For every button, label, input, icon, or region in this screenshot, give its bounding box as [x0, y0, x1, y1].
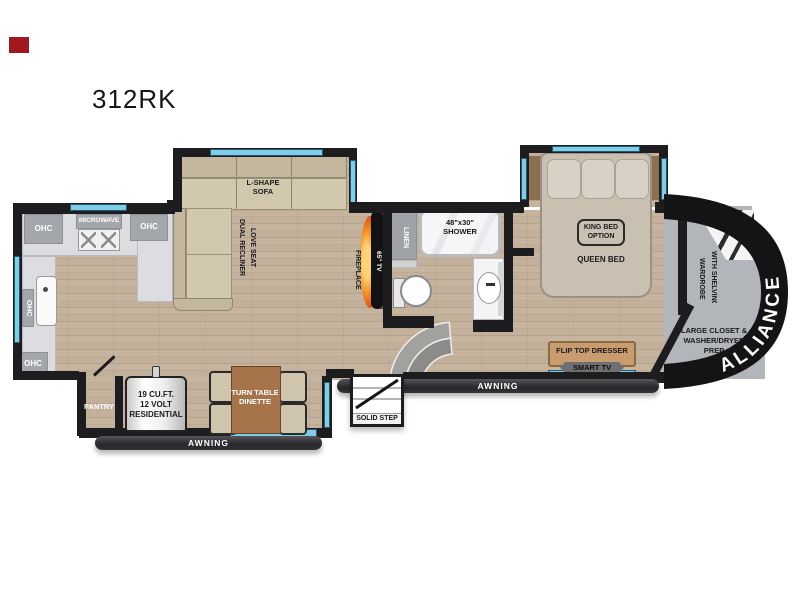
- wall-vanity-bottom: [473, 320, 513, 332]
- shower-label-line2: SHOWER: [424, 227, 496, 236]
- ohc-label-left: OHC: [23, 292, 34, 324]
- shower-label-line1: 48"x30": [424, 218, 496, 227]
- loveseat-cushion-divider: [186, 254, 232, 255]
- wall-top-mid: [349, 202, 524, 213]
- fireplace-label: FIREPLACE: [350, 230, 361, 310]
- sofa-slide-top-window: [210, 149, 323, 156]
- linen-ledge: [391, 260, 417, 268]
- vanity-faucet-icon: [486, 283, 495, 286]
- solid-step-label: SOLID STEP: [353, 413, 401, 424]
- bed-slide-top-window: [552, 146, 640, 152]
- wall-bath-right: [504, 212, 513, 332]
- ohc-label-1: OHC: [24, 224, 63, 234]
- faucet-icon: [43, 287, 48, 292]
- kitchen-sink: [36, 276, 57, 326]
- awning-left-label: AWNING: [188, 438, 229, 448]
- fridge-label-line1: 19 CU.FT.: [127, 390, 185, 400]
- king-bed-option-label: KING BED OPTION: [577, 223, 625, 241]
- ohc-label-3: OHC: [18, 359, 48, 369]
- wall-toilet-room: [388, 316, 434, 328]
- wall-bedroom-step-stub: [504, 248, 534, 256]
- sofa-label: L-SHAPE SOFA: [238, 178, 288, 196]
- burner-icon-left: [81, 232, 96, 248]
- loveseat-arm: [173, 298, 233, 311]
- svg-text:ALLIANCE: ALLIANCE: [717, 273, 785, 377]
- solid-step: SOLID STEP: [350, 374, 404, 427]
- red-corner-tag: [9, 37, 29, 53]
- awning-right-label: AWNING: [478, 381, 519, 391]
- flip-top-dresser-label: FLIP TOP DRESSER: [548, 346, 636, 355]
- shower-label: 48"x30" SHOWER: [424, 218, 496, 236]
- dinette-chair-3: [279, 371, 307, 403]
- dinette-label-line2: DINETTE: [228, 397, 282, 406]
- smart-tv-label: SMART TV: [556, 363, 628, 372]
- sofa-label-line1: L-SHAPE: [238, 178, 288, 187]
- loveseat-back: [173, 208, 186, 300]
- refrigerator-label: 19 CU.FT. 12 VOLT RESIDENTIAL: [127, 390, 185, 420]
- model-title: 312RK: [92, 84, 177, 115]
- loveseat-label-line1: DUAL RECLINER: [234, 214, 245, 282]
- solid-step-icon: [353, 377, 401, 411]
- sofa-label-line2: SOFA: [238, 187, 288, 196]
- awning-left: AWNING: [95, 436, 322, 450]
- fridge-label-line3: RESIDENTIAL: [127, 410, 185, 420]
- sofa-slide-corner: [167, 200, 181, 212]
- tv-label: 65" TV: [373, 238, 382, 284]
- pantry-right-wall: [115, 376, 123, 432]
- loveseat-label-line2: LOVE SEAT: [245, 214, 256, 282]
- floorplan-canvas: 312RK OHC MICROWAVE OHC OHC OHC L-SHAPE …: [0, 0, 800, 600]
- sofa-seat-divider: [236, 156, 237, 210]
- left-window: [14, 256, 20, 343]
- sofa-seat-divider2: [291, 156, 292, 210]
- dinette-label-line1: TURN TABLE: [228, 388, 282, 397]
- burner-icon-right: [101, 232, 116, 248]
- refrigerator-hinge-icon: [152, 366, 160, 378]
- pillow-1: [547, 159, 581, 199]
- bed-slide-left-window: [521, 158, 527, 200]
- galley-slide-right-window: [324, 382, 330, 428]
- linen-label: LINEN: [398, 218, 409, 256]
- sofa-slide-right-window: [350, 160, 356, 205]
- vanity-sink: [477, 272, 501, 304]
- wall-living-bath: [383, 204, 392, 328]
- ohc-label-2: OHC: [130, 222, 168, 232]
- king-label-line2: OPTION: [577, 232, 625, 241]
- pillow-2: [581, 159, 615, 199]
- brand-logo-text: ALLIANCE: [717, 273, 785, 377]
- pantry-label: PANTRY: [82, 402, 116, 411]
- microwave-label: MICROWAVE: [75, 217, 123, 225]
- wall-kitchen-bottom: [13, 371, 79, 380]
- front-cap: ALLIANCE: [640, 180, 800, 395]
- dinette-label: TURN TABLE DINETTE: [228, 388, 282, 406]
- kitchen-top-window: [70, 204, 127, 211]
- dinette-chair-4: [279, 403, 307, 435]
- queen-bed-label: QUEEN BED: [556, 255, 646, 265]
- toilet-bowl: [400, 275, 432, 307]
- fridge-label-line2: 12 VOLT: [127, 400, 185, 410]
- sofa-back: [181, 156, 347, 178]
- king-label-line1: KING BED: [577, 223, 625, 232]
